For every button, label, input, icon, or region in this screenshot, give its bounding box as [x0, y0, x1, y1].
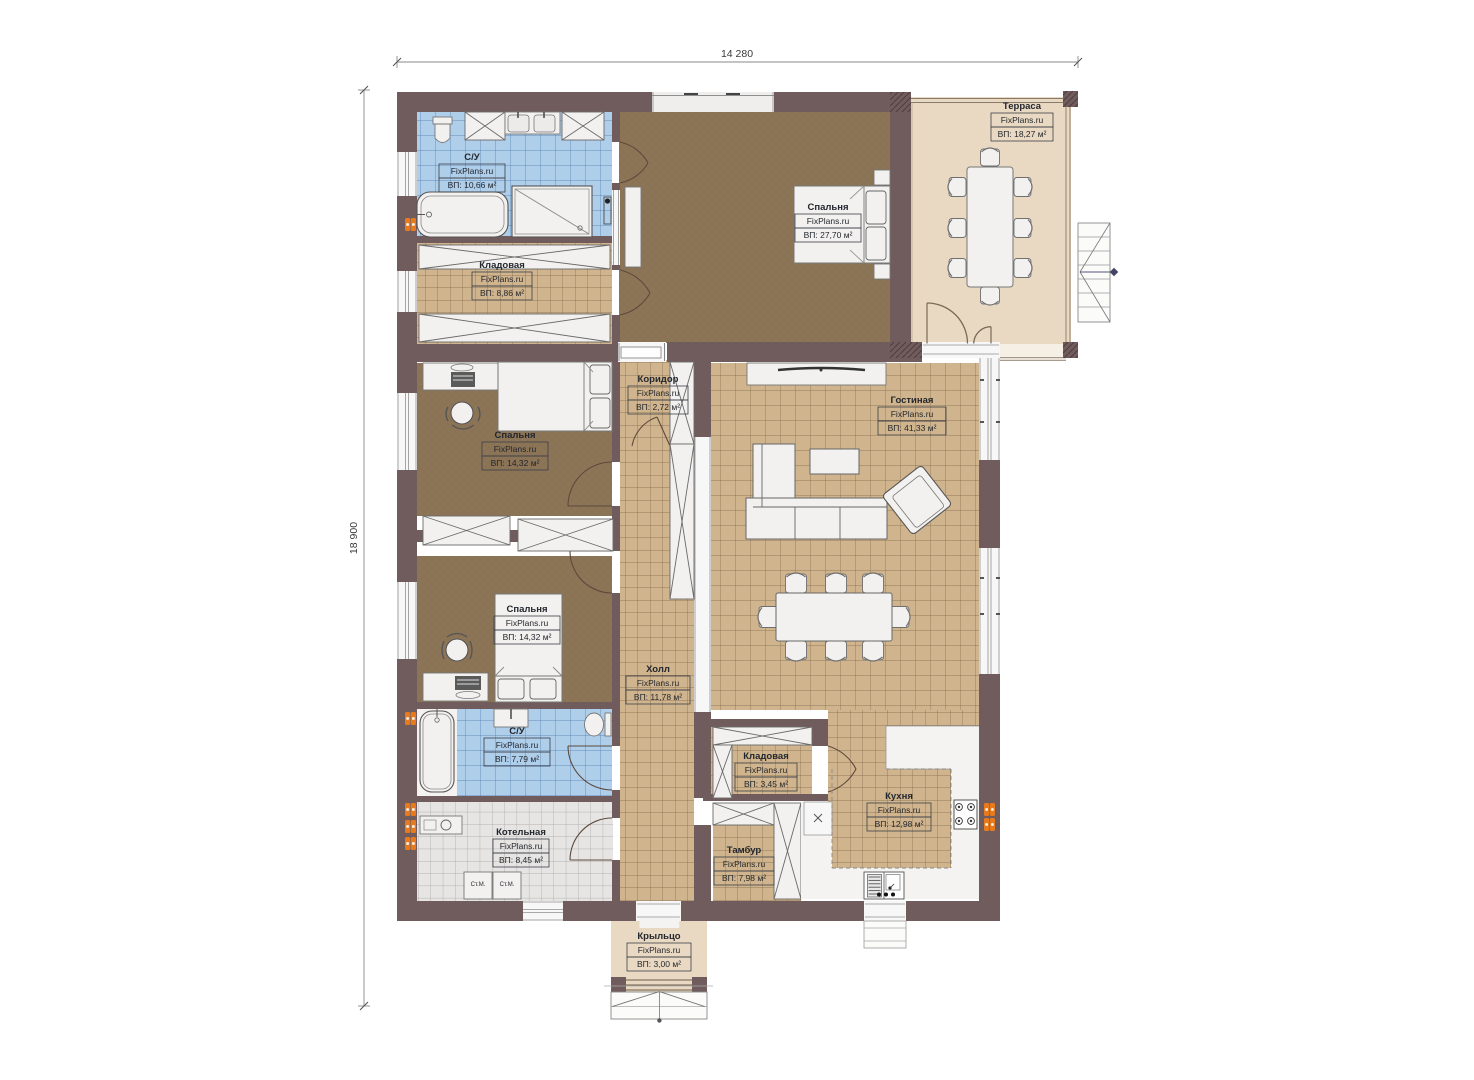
svg-text:ВП: 14,32 м²: ВП: 14,32 м²	[503, 632, 552, 642]
svg-text:Спальня: Спальня	[506, 604, 547, 615]
svg-text:14 280: 14 280	[721, 48, 753, 60]
svg-text:FixPlans.ru: FixPlans.ru	[451, 166, 494, 176]
svg-text:FixPlans.ru: FixPlans.ru	[494, 444, 537, 454]
svg-text:FixPlans.ru: FixPlans.ru	[891, 409, 934, 419]
svg-text:ВП: 10,66 м²: ВП: 10,66 м²	[448, 180, 497, 190]
svg-text:FixPlans.ru: FixPlans.ru	[637, 678, 680, 688]
svg-text:Ст.М.: Ст.М.	[500, 882, 515, 888]
svg-text:ВП: 8,86 м²: ВП: 8,86 м²	[480, 288, 524, 298]
svg-text:FixPlans.ru: FixPlans.ru	[807, 216, 850, 226]
svg-text:Тамбур: Тамбур	[727, 845, 762, 856]
svg-text:Кладовая: Кладовая	[479, 260, 525, 271]
svg-text:FixPlans.ru: FixPlans.ru	[481, 274, 524, 284]
svg-text:ВП: 11,78 м²: ВП: 11,78 м²	[634, 692, 682, 702]
svg-text:FixPlans.ru: FixPlans.ru	[500, 841, 543, 851]
svg-text:FixPlans.ru: FixPlans.ru	[1001, 115, 1044, 125]
svg-text:FixPlans.ru: FixPlans.ru	[745, 765, 788, 775]
svg-text:ВП: 41,33 м²: ВП: 41,33 м²	[888, 423, 937, 433]
svg-text:С/У: С/У	[509, 726, 525, 737]
svg-text:ВП: 8,45 м²: ВП: 8,45 м²	[499, 855, 543, 865]
svg-text:ВП: 7,98 м²: ВП: 7,98 м²	[722, 873, 766, 883]
svg-text:Терраса: Терраса	[1003, 101, 1042, 112]
svg-text:ВП: 7,79 м²: ВП: 7,79 м²	[495, 754, 539, 764]
svg-text:Ст.М.: Ст.М.	[471, 882, 486, 888]
svg-text:Холл: Холл	[646, 664, 670, 675]
svg-text:FixPlans.ru: FixPlans.ru	[496, 740, 539, 750]
svg-text:Коридор: Коридор	[638, 374, 679, 385]
svg-text:ВП: 2,72 м²: ВП: 2,72 м²	[636, 402, 680, 412]
svg-text:FixPlans.ru: FixPlans.ru	[638, 945, 681, 955]
svg-text:Крыльцо: Крыльцо	[637, 931, 680, 942]
svg-text:Гостиная: Гостиная	[891, 395, 934, 406]
svg-text:С/У: С/У	[464, 152, 480, 163]
svg-text:ВП: 27,70 м²: ВП: 27,70 м²	[804, 230, 853, 240]
svg-text:FixPlans.ru: FixPlans.ru	[637, 388, 680, 398]
svg-text:Кухня: Кухня	[885, 791, 913, 802]
svg-text:Кладовая: Кладовая	[743, 751, 789, 762]
svg-text:Котельная: Котельная	[496, 827, 546, 838]
svg-text:FixPlans.ru: FixPlans.ru	[506, 618, 549, 628]
svg-text:Спальня: Спальня	[494, 430, 535, 441]
svg-text:ВП: 3,00 м²: ВП: 3,00 м²	[637, 959, 681, 969]
svg-text:ВП: 12,98 м²: ВП: 12,98 м²	[875, 819, 924, 829]
svg-text:Спальня: Спальня	[807, 202, 848, 213]
svg-text:FixPlans.ru: FixPlans.ru	[878, 805, 921, 815]
svg-text:18 900: 18 900	[348, 522, 360, 554]
svg-text:FixPlans.ru: FixPlans.ru	[723, 859, 766, 869]
svg-text:ВП: 18,27 м²: ВП: 18,27 м²	[998, 129, 1047, 139]
svg-text:ВП: 14,32 м²: ВП: 14,32 м²	[491, 458, 540, 468]
svg-text:ВП: 3,45 м²: ВП: 3,45 м²	[744, 779, 788, 789]
